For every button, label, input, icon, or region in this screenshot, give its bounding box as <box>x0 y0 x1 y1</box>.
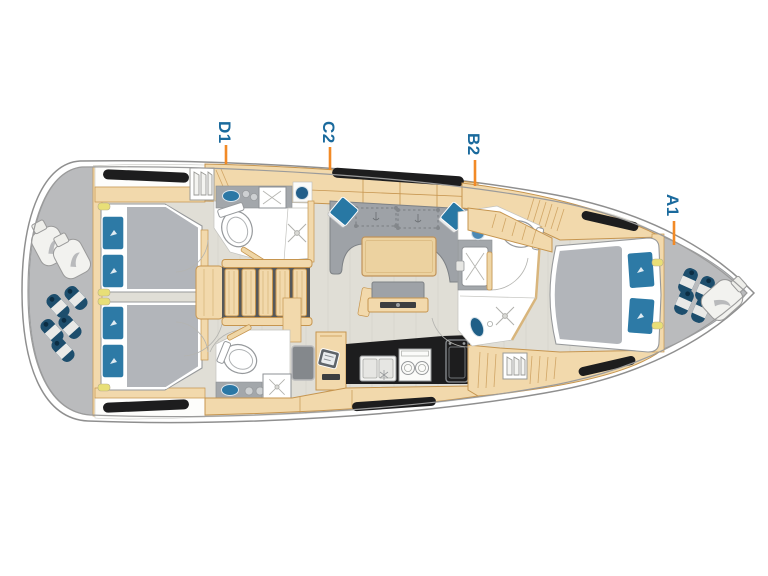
bed-blanket <box>554 245 623 345</box>
cabin-label-a1: A1 <box>663 194 682 217</box>
reading-light-icon <box>652 259 663 266</box>
nav-seat <box>292 346 314 380</box>
hanging-locker-icon <box>503 353 527 379</box>
cabin-label-d1: D1 <box>215 121 234 144</box>
reading-light-icon <box>652 322 663 329</box>
reading-light-icon <box>98 298 110 305</box>
reading-light-icon <box>98 203 110 210</box>
door-panel <box>487 252 492 290</box>
saloon-table <box>362 237 436 276</box>
sink-icon <box>222 385 239 396</box>
cabin-label-b2: B2 <box>464 133 483 156</box>
floor-plan-canvas: D1 C2 B2 A1 <box>0 0 768 576</box>
head-bulkhead <box>308 201 314 262</box>
yacht-floor-plan: D1 C2 B2 A1 <box>0 0 768 576</box>
reading-light-icon <box>98 384 110 391</box>
double-sink-icon <box>360 356 396 381</box>
reading-light-icon <box>98 289 110 296</box>
oven-icon <box>446 340 468 382</box>
speaker-icon <box>296 187 309 200</box>
port-cockpit-locker <box>95 164 205 202</box>
sink-icon <box>223 191 240 202</box>
cabin-label-c2: C2 <box>319 121 338 144</box>
stove-icon <box>399 349 431 381</box>
starboard-cockpit-locker <box>95 388 205 419</box>
